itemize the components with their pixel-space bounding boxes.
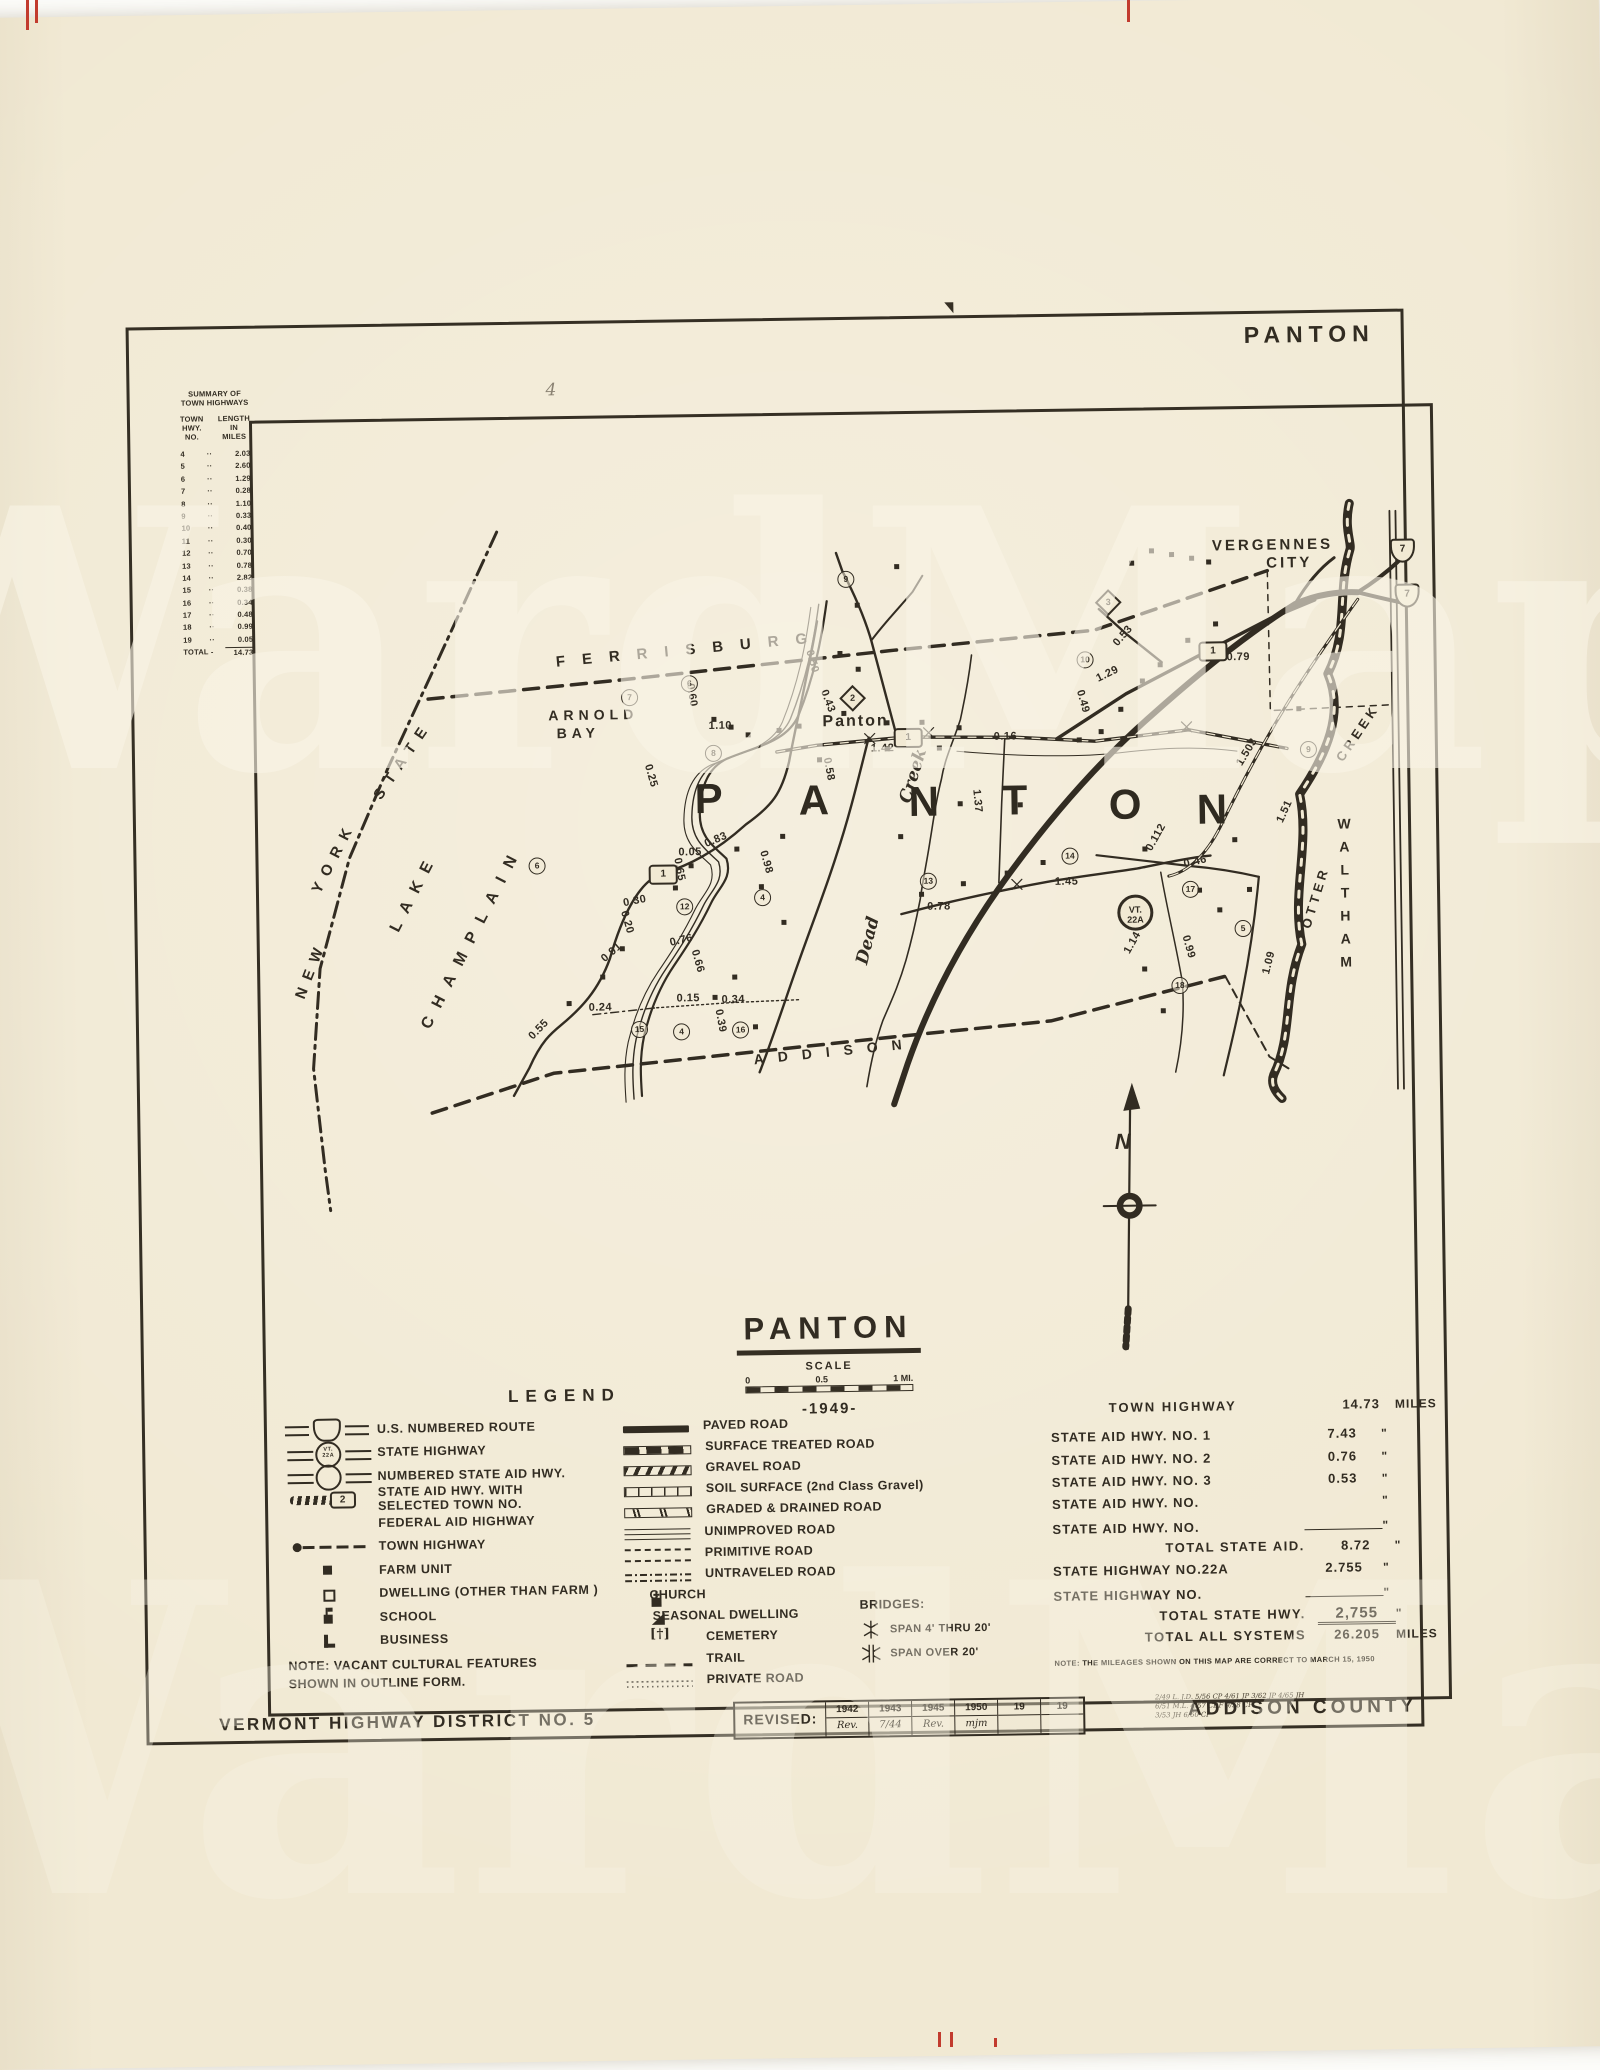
summary-hwy-no: 5 xyxy=(181,462,195,471)
legend-row-label: PRIMITIVE ROAD xyxy=(705,1543,814,1559)
red-registration-mark xyxy=(938,2032,941,2047)
state-aid-highway-marker: 1 xyxy=(1198,641,1227,661)
farm-unit-icon xyxy=(781,920,786,925)
summary-hwy-length: 2.82 xyxy=(226,573,252,582)
mileage-label: 1.45 xyxy=(1055,875,1079,887)
summary-row: 7 0.28 xyxy=(181,486,251,496)
summary-row: 10 0.40 xyxy=(181,523,251,533)
summary-leader-dots xyxy=(195,499,225,508)
farm-unit-icon xyxy=(797,724,802,729)
road-type-symbol-icon xyxy=(623,1465,691,1476)
stat-label: STATE HIGHWAY NO. xyxy=(1053,1586,1305,1605)
summary-row: 6 1.29 xyxy=(181,473,251,483)
farm-unit-icon xyxy=(1077,737,1082,742)
farm-unit-icon xyxy=(732,975,737,980)
scale-bar: 0 0.5 1 MI. xyxy=(745,1372,913,1396)
summary-hwy-no: 7 xyxy=(181,487,195,496)
summary-hwy-length: 0.05 xyxy=(227,635,253,644)
stat-label: STATE AID HWY. NO. 2 xyxy=(1051,1449,1303,1468)
bridge-span-row: SPAN 4' THRU 20' xyxy=(860,1616,991,1642)
district-label: VERMONT HIGHWAY DISTRICT NO. 5 xyxy=(219,1710,596,1736)
revised-cells: 1942 Rev. 1943 7/44 1945 Rev. 1950 mjm 1… xyxy=(825,1699,1083,1737)
summary-leader-dots xyxy=(196,585,226,594)
summary-row: 13 0.78 xyxy=(182,560,252,570)
revised-initials: Rev. xyxy=(826,1718,868,1734)
title-underline xyxy=(737,1348,921,1355)
farm-unit-icon xyxy=(746,732,751,737)
summary-hwy-length: 0.48 xyxy=(227,610,253,619)
summary-hwy-length: 0.33 xyxy=(225,511,251,520)
statistics-row: TOWN HIGHWAY 14.73 MILES xyxy=(1051,1395,1437,1423)
stat-value: 14.73 xyxy=(1327,1396,1395,1412)
road-type-symbol-icon xyxy=(623,1425,689,1433)
stat-value: 2,755 xyxy=(1318,1604,1396,1625)
farm-unit-icon xyxy=(600,975,605,980)
bridge-span-row: SPAN OVER 20' xyxy=(860,1640,991,1666)
north-arrow xyxy=(1102,1082,1158,1349)
legend-row-label: BUSINESS xyxy=(380,1632,449,1647)
revised-year: 1945 xyxy=(912,1700,954,1717)
stat-unit: " xyxy=(1382,1493,1426,1508)
farm-unit-icon xyxy=(1149,548,1154,553)
summary-rows: 4 2.03 5 2.60 6 1.29 7 0.28 8 xyxy=(180,449,253,645)
revised-table: REVISED: 1942 Rev. 1943 7/44 1945 Rev. 1… xyxy=(733,1696,1086,1739)
farm-unit-icon xyxy=(1140,678,1145,683)
summary-row: 11 0.30 xyxy=(182,535,252,545)
summary-row: 12 0.70 xyxy=(182,548,252,558)
scanned-map-page: { "watermark": "WardMaps", "page": { "co… xyxy=(0,0,1600,2047)
revised-initials: Rev. xyxy=(912,1716,954,1732)
farm-unit-icon xyxy=(937,746,942,751)
summary-hwy-length: 0.99 xyxy=(227,622,253,631)
revised-year: 19 xyxy=(998,1699,1040,1716)
farm-unit-icon xyxy=(884,720,889,725)
stat-value: 7.43 xyxy=(1303,1425,1381,1441)
small-stream xyxy=(957,747,1237,757)
legend-note: NOTE: VACANT CULTURAL FEATURES SHOWN IN … xyxy=(288,1652,638,1693)
legend-title: LEGEND xyxy=(444,1384,684,1408)
legend-row-label: STATE AID HWY. WITH SELECTED TOWN NO. xyxy=(378,1483,524,1513)
stat-label: STATE AID HWY. NO. 3 xyxy=(1052,1471,1304,1490)
legend-row-label: SURFACE TREATED ROAD xyxy=(705,1436,875,1453)
farm-unit-icon xyxy=(1161,1008,1166,1013)
farm-unit-icon xyxy=(753,1024,758,1029)
farm-unit-icon xyxy=(1189,556,1194,561)
revised-year: 1942 xyxy=(826,1702,868,1719)
mileage-statistics-table: TOWN HIGHWAY 14.73 MILES STATE AID HWY. … xyxy=(1051,1395,1441,1668)
scale-bar-rule xyxy=(745,1383,913,1392)
legend-row-label: DWELLING (OTHER THAN FARM ) xyxy=(379,1583,598,1600)
farm-unit-icon xyxy=(1206,559,1211,564)
town-spread-letter: O xyxy=(1108,781,1141,829)
farm-unit-icon xyxy=(1118,707,1123,712)
route-22a-road xyxy=(887,592,1365,1104)
revised-cell: 19 xyxy=(997,1699,1040,1734)
red-registration-mark xyxy=(994,2038,997,2047)
legend-row-label: PRIVATE ROAD xyxy=(707,1670,805,1685)
farm-unit-icon xyxy=(1232,837,1237,842)
summary-row: 14 2.82 xyxy=(182,573,252,583)
summary-hwy-length: 0.70 xyxy=(226,548,252,557)
road-type-symbol-icon xyxy=(626,1629,692,1646)
summary-column-headers: TOWNHWY.NO. LENGTHINMILES xyxy=(180,414,250,442)
stat-unit: " xyxy=(1382,1470,1426,1485)
farm-unit-icon xyxy=(689,863,694,868)
legend-row-label: U.S. NUMBERED ROUTE xyxy=(377,1419,536,1435)
summary-leader-dots xyxy=(195,474,225,483)
corner-town-title: PANTON xyxy=(1244,320,1375,349)
mileage-label: 0.15 xyxy=(676,992,700,1004)
summary-leader-dots xyxy=(194,449,224,458)
legend-row-label: UNTRAVELED ROAD xyxy=(705,1564,836,1580)
revised-cell: 1945 Rev. xyxy=(911,1700,954,1735)
town-highway-number-marker: 9 xyxy=(837,571,854,588)
town-highway-number-marker: 6 xyxy=(528,857,545,874)
map-sheet: PANTON 4 SUMMARY OFTOWN HIGHWAYS TOWNHWY… xyxy=(126,309,1425,1746)
summary-leader-dots xyxy=(196,573,226,582)
legend-row-label: FARM UNIT xyxy=(379,1562,453,1577)
stat-unit: " xyxy=(1382,1518,1426,1533)
summary-leader-dots xyxy=(196,536,226,545)
farm-unit-icon xyxy=(734,847,739,852)
legend-symbol-icon xyxy=(286,1523,378,1524)
legend-left-column: U.S. NUMBERED ROUTE VT. 22A STATE HIGHWA… xyxy=(285,1413,639,1693)
revised-year: 19 xyxy=(1041,1699,1083,1716)
farm-unit-icon xyxy=(1129,561,1134,566)
mileage-label: 1.37 xyxy=(970,789,984,814)
statistics-rows: TOWN HIGHWAY 14.73 MILES STATE AID HWY. … xyxy=(1051,1395,1441,1653)
town-highway-number-marker: 9 xyxy=(1300,741,1317,758)
panton-village-road xyxy=(777,728,1287,756)
road-type-symbol-icon xyxy=(624,1508,692,1519)
town-highway-number-marker: 6 xyxy=(681,675,698,692)
revised-year: 1950 xyxy=(955,1700,997,1717)
mileage-label: 1.10 xyxy=(708,720,732,732)
summary-hwy-no: 17 xyxy=(183,611,197,620)
legend-symbol-icon xyxy=(288,1605,380,1629)
town-spread-letter: A xyxy=(798,776,829,824)
farm-unit-icon xyxy=(919,720,924,725)
road-type-symbol-icon xyxy=(624,1486,692,1497)
stat-value: 2.755 xyxy=(1305,1559,1383,1575)
legend-symbol-icon xyxy=(287,1582,379,1606)
revised-initials xyxy=(1041,1715,1083,1731)
stat-value xyxy=(1304,1504,1382,1505)
farm-unit-icon xyxy=(1296,706,1301,711)
pencil-annotation: 4 xyxy=(545,380,556,400)
stat-label: TOTAL STATE AID. xyxy=(1053,1538,1317,1557)
farm-unit-icon xyxy=(898,834,903,839)
mileage-label: 0.78 xyxy=(927,900,951,912)
bridge-small-span-icon xyxy=(860,1620,882,1638)
summary-hwy-length: 0.28 xyxy=(225,486,251,495)
summary-hwy-no: 10 xyxy=(181,524,195,533)
stat-value: 0.76 xyxy=(1303,1448,1381,1464)
farm-unit-icon xyxy=(777,728,782,733)
town-spread-letter: N xyxy=(1196,785,1227,833)
statistics-row: TOTAL ALL SYSTEMS 26.205 MILES xyxy=(1054,1625,1440,1653)
stat-unit: " xyxy=(1381,1426,1425,1441)
legend-row-label: CEMETERY xyxy=(706,1628,778,1643)
summary-row: 15 0.38 xyxy=(182,585,252,595)
road-type-symbol-icon xyxy=(625,1573,691,1582)
stat-unit: " xyxy=(1383,1585,1427,1600)
legend-row-label: STATE HIGHWAY xyxy=(377,1444,486,1460)
stat-label: TOTAL STATE HWY. xyxy=(1054,1606,1318,1625)
farm-unit-icon xyxy=(1217,907,1222,912)
farm-unit-icon xyxy=(1247,887,1252,892)
summary-hwy-no: 13 xyxy=(182,561,196,570)
mileage-label: 0.16 xyxy=(994,730,1018,742)
summary-title: SUMMARY OFTOWN HIGHWAYS xyxy=(179,389,249,408)
legend-symbol-icon xyxy=(288,1629,380,1653)
legend-row-label: PAVED ROAD xyxy=(703,1416,789,1431)
summary-hwy-length: 1.29 xyxy=(225,473,251,482)
road-type-symbol-icon xyxy=(623,1446,691,1456)
legend-symbol-icon xyxy=(286,1535,378,1559)
stat-unit: " xyxy=(1383,1559,1427,1574)
summary-row: 17 0.48 xyxy=(183,610,253,620)
label-arnold: ARNOLD xyxy=(548,706,638,723)
farm-unit-icon xyxy=(961,881,966,886)
summary-leader-dots xyxy=(196,548,226,557)
legend-left-rows: U.S. NUMBERED ROUTE VT. 22A STATE HIGHWA… xyxy=(285,1413,638,1653)
summary-leader-dots xyxy=(197,610,227,619)
summary-hwy-length: 0.78 xyxy=(226,560,252,569)
revised-cell: 1942 Rev. xyxy=(825,1702,868,1737)
stat-value: 0.53 xyxy=(1304,1470,1382,1486)
summary-hwy-no: 12 xyxy=(182,549,196,558)
label-vergennes: VERGENNES xyxy=(1212,536,1333,555)
summary-total-label: TOTAL - xyxy=(183,647,225,658)
revised-initials: mjm xyxy=(955,1716,997,1732)
red-registration-mark xyxy=(26,0,29,30)
farm-unit-icon xyxy=(1158,662,1163,667)
summary-hwy-length: 2.03 xyxy=(224,449,250,458)
stat-label: TOWN HIGHWAY xyxy=(1051,1397,1328,1416)
summary-total-row: TOTAL - 14.73 xyxy=(183,647,253,658)
bridge-span-label: SPAN 4' THRU 20' xyxy=(890,1622,991,1635)
summary-row: 4 2.03 xyxy=(180,449,250,459)
farm-unit-icon xyxy=(806,803,811,808)
legend-row-label: TOWN HIGHWAY xyxy=(379,1538,486,1554)
east-road xyxy=(1096,853,1258,879)
town-highway-summary-table: SUMMARY OFTOWN HIGHWAYS TOWNHWY.NO. LENG… xyxy=(179,389,253,658)
stat-value xyxy=(1305,1581,1383,1597)
stat-unit: MILES xyxy=(1395,1396,1437,1411)
legend-symbol-icon: 2 xyxy=(286,1488,378,1512)
stat-unit: " xyxy=(1381,1448,1425,1463)
farm-unit-icon xyxy=(1213,621,1218,626)
legend-row-label: FEDERAL AID HIGHWAY xyxy=(378,1513,535,1529)
state-aid-highway-marker: 1 xyxy=(649,864,678,884)
legend-symbol-icon xyxy=(285,1417,377,1441)
summary-leader-dots xyxy=(195,486,225,495)
legend-bridges: BRIDGES: SPAN 4' THRU 20' SPAN OVER 20' xyxy=(859,1596,991,1666)
red-registration-mark xyxy=(35,0,38,23)
summary-row: 19 0.05 xyxy=(183,635,253,645)
summary-leader-dots xyxy=(197,623,227,632)
farm-unit-icon xyxy=(1005,871,1010,876)
summary-row: 9 0.33 xyxy=(181,511,251,521)
bridge-large-span-icon xyxy=(860,1644,882,1662)
stat-value: 8.72 xyxy=(1317,1537,1395,1553)
farm-unit-icon xyxy=(1169,552,1174,557)
summary-hwy-no: 18 xyxy=(183,623,197,632)
map-title-block: PANTON SCALE 0 0.5 1 MI. -1949- xyxy=(703,1308,955,1418)
town-highway-number-marker: 18 xyxy=(1171,977,1188,994)
road-type-symbol-icon xyxy=(625,1549,691,1563)
summary-hwy-no: 16 xyxy=(183,598,197,607)
summary-hwy-no: 8 xyxy=(181,499,195,508)
stat-label: TOTAL ALL SYSTEMS xyxy=(1054,1627,1318,1646)
stat-unit: MILES xyxy=(1396,1626,1440,1641)
legend-symbol-icon xyxy=(285,1464,377,1488)
summary-hwy-no: 6 xyxy=(181,474,195,483)
legend-row-label: SOIL SURFACE (2nd Class Gravel) xyxy=(706,1478,924,1495)
farm-unit-icon xyxy=(855,603,860,608)
legend-row-label: SEASONAL DWELLING xyxy=(653,1607,799,1623)
scale-tick-1mi: 1 MI. xyxy=(893,1372,913,1382)
label-bay: BAY xyxy=(556,725,600,742)
farm-unit-icon xyxy=(713,995,718,1000)
farm-unit-icon xyxy=(841,711,846,716)
town-spread-letter: P xyxy=(694,775,723,823)
road-type-symbol-icon xyxy=(626,1664,692,1668)
road-type-symbol-icon xyxy=(624,1528,690,1540)
legend-row-label: NUMBERED STATE AID HWY. xyxy=(378,1466,566,1483)
road-type-symbol-icon xyxy=(652,1613,665,1625)
summary-hwy-length: 0.30 xyxy=(226,535,252,544)
bridge-span-label: SPAN OVER 20' xyxy=(890,1646,979,1659)
farm-unit-icon xyxy=(894,564,899,569)
farm-unit-icon xyxy=(856,667,861,672)
summary-hwy-no: 14 xyxy=(182,573,196,582)
road-type-symbol-icon xyxy=(651,1597,661,1606)
road-type-symbol-icon xyxy=(627,1681,693,1689)
revised-cell: 19 xyxy=(1040,1699,1083,1734)
stat-label: STATE AID HWY. NO. xyxy=(1052,1493,1304,1512)
revised-initials: 7/44 xyxy=(869,1717,911,1733)
summary-col2-header: LENGTHINMILES xyxy=(218,414,250,441)
farm-unit-icon xyxy=(673,885,678,890)
farm-unit-icon xyxy=(1185,638,1190,643)
farm-unit-icon xyxy=(919,892,924,897)
north-fork-road xyxy=(870,576,923,641)
label-vergennes-city: CITY xyxy=(1266,554,1312,572)
compass-north-letter: N xyxy=(1115,1129,1131,1155)
farm-unit-icon xyxy=(780,834,785,839)
summary-leader-dots xyxy=(195,511,225,520)
summary-hwy-length: 0.34 xyxy=(227,597,253,606)
summary-col1-header: TOWNHWY.NO. xyxy=(180,414,204,441)
bridges-header: BRIDGES: xyxy=(859,1596,990,1618)
mileage-label: 0.24 xyxy=(589,1001,613,1013)
label-panton-village: Panton xyxy=(822,712,888,731)
summary-leader-dots xyxy=(197,598,227,607)
summary-row: 18 0.99 xyxy=(183,622,253,632)
legend-row: BUSINESS xyxy=(288,1625,638,1654)
summary-hwy-no: 9 xyxy=(181,511,195,520)
mileage-label: 0.79 xyxy=(1226,651,1250,663)
summary-leader-dots xyxy=(195,523,225,532)
farm-unit-icon xyxy=(1142,966,1147,971)
revised-initials xyxy=(998,1715,1040,1731)
summary-hwy-length: 2.60 xyxy=(225,461,251,470)
stat-label: STATE AID HWY. NO. xyxy=(1052,1519,1304,1538)
summary-leader-dots xyxy=(197,635,227,644)
stat-label: STATE HIGHWAY NO.22A xyxy=(1053,1560,1305,1579)
scale-tick-half: 0.5 xyxy=(815,1374,828,1384)
south-east-road xyxy=(1221,877,1262,1076)
legend-row-label: SCHOOL xyxy=(380,1609,437,1624)
state-aid-highway-marker: 1 xyxy=(894,728,923,748)
farm-unit-icon xyxy=(958,801,963,806)
stat-unit: " xyxy=(1396,1605,1440,1620)
legend-row-label: TRAIL xyxy=(706,1650,745,1665)
summary-hwy-length: 1.10 xyxy=(225,498,251,507)
edge-arrow-mark xyxy=(944,302,953,313)
revised-label: REVISED: xyxy=(735,1702,826,1737)
mileage-label: 0.34 xyxy=(722,993,746,1005)
stat-label: STATE AID HWY. NO. 1 xyxy=(1051,1427,1303,1446)
summary-hwy-length: 0.38 xyxy=(226,585,252,594)
legend-symbol-icon xyxy=(287,1558,379,1582)
farm-unit-icon xyxy=(567,1001,572,1006)
farm-unit-icon xyxy=(759,884,764,889)
mileage-label: 1.42 xyxy=(871,742,895,754)
summary-total-value: 14.73 xyxy=(225,647,253,657)
town-spread-letter: T xyxy=(1001,776,1027,824)
revised-cell: 1943 7/44 xyxy=(868,1701,911,1736)
summary-row: 5 2.60 xyxy=(181,461,251,471)
revised-cell: 1950 mjm xyxy=(954,1700,997,1735)
stat-value xyxy=(1304,1515,1382,1531)
summary-leader-dots xyxy=(196,561,226,570)
red-registration-mark xyxy=(950,2032,953,2047)
farm-unit-icon xyxy=(837,651,842,656)
farm-unit-icon xyxy=(1018,802,1023,807)
stat-value: 26.205 xyxy=(1318,1626,1396,1642)
scale-tick-0: 0 xyxy=(745,1375,750,1385)
mileage-label: 0.05 xyxy=(678,846,702,858)
legend-row-label: GRADED & DRAINED ROAD xyxy=(706,1500,882,1517)
legend-row-label: GRAVEL ROAD xyxy=(705,1459,801,1474)
legend-row-label: UNIMPROVED ROAD xyxy=(704,1522,835,1538)
label-waltham: WALTHAM xyxy=(1336,815,1354,976)
legend-symbol-icon: VT. 22A xyxy=(285,1441,377,1465)
farm-unit-icon xyxy=(957,725,962,730)
stat-unit: " xyxy=(1395,1537,1439,1552)
summary-hwy-no: 11 xyxy=(182,536,196,545)
summary-hwy-length: 0.40 xyxy=(225,523,251,532)
summary-row: 16 0.34 xyxy=(183,597,253,607)
town-hwy-18-road xyxy=(1161,872,1184,1072)
summary-hwy-no: 15 xyxy=(182,586,196,595)
farm-unit-icon xyxy=(1041,860,1046,865)
summary-hwy-no: 4 xyxy=(180,450,194,459)
summary-hwy-no: 19 xyxy=(183,635,197,644)
town-spread-letter: N xyxy=(908,778,939,826)
scale-label: SCALE xyxy=(704,1358,954,1374)
county-label: ADDISON COUNTY xyxy=(1188,1696,1417,1721)
revised-year: 1943 xyxy=(869,1701,911,1718)
red-registration-mark xyxy=(1127,0,1130,22)
farm-unit-icon xyxy=(1099,729,1104,734)
summary-row: 8 1.10 xyxy=(181,498,251,508)
summary-leader-dots xyxy=(195,461,225,470)
map-title: PANTON xyxy=(703,1308,954,1348)
